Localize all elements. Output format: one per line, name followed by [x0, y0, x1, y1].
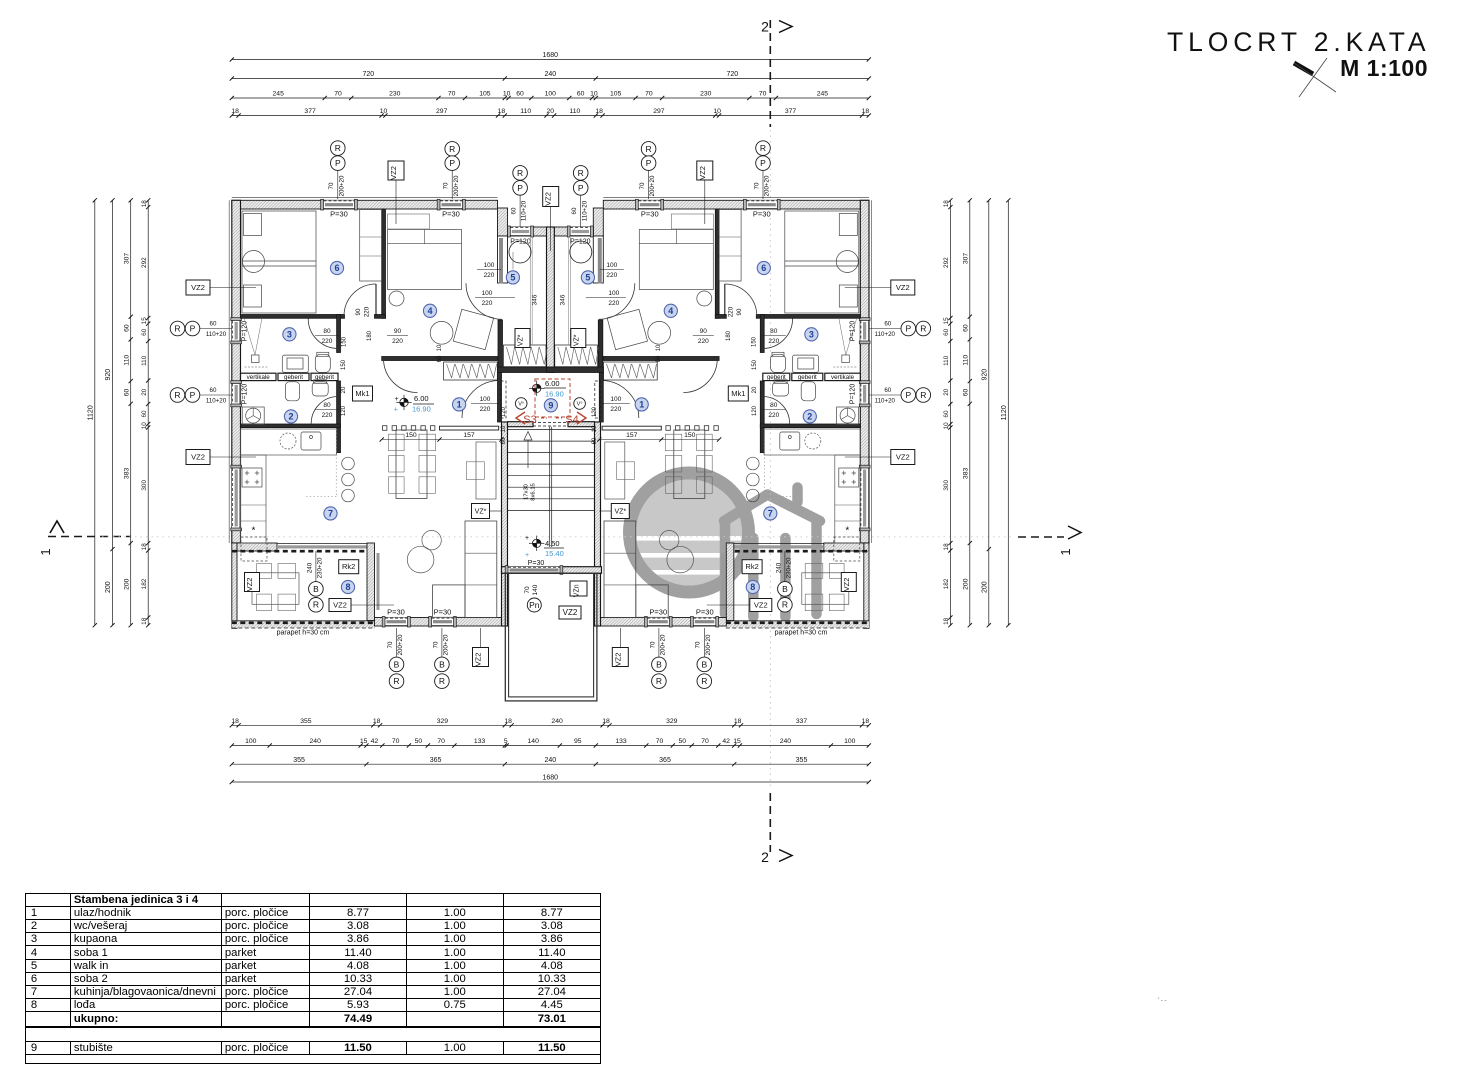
svg-text:60: 60: [501, 437, 507, 444]
svg-text:VZ2: VZ2: [842, 578, 851, 592]
svg-text:220: 220: [364, 306, 371, 317]
svg-text:2: 2: [761, 849, 769, 865]
svg-text:P: P: [335, 158, 341, 168]
svg-text:200: 200: [105, 581, 112, 593]
svg-text:180: 180: [367, 330, 373, 341]
svg-text:377: 377: [304, 108, 316, 115]
svg-text:120: 120: [752, 405, 758, 416]
svg-text:182: 182: [141, 578, 148, 589]
svg-text:300: 300: [943, 480, 950, 491]
svg-text:vertikale: vertikale: [247, 374, 271, 381]
svg-text:R: R: [920, 323, 926, 333]
svg-text:10: 10: [437, 344, 443, 351]
svg-text:80: 80: [770, 328, 778, 335]
svg-text:60: 60: [571, 207, 578, 214]
svg-text:8x6.15: 8x6.15: [531, 483, 537, 500]
svg-text:P=30: P=30: [442, 210, 460, 219]
svg-text:230: 230: [700, 91, 712, 98]
svg-text:42: 42: [371, 738, 379, 745]
svg-text:geberit: geberit: [284, 374, 303, 381]
svg-text:15: 15: [360, 738, 368, 745]
svg-text:3: 3: [809, 329, 814, 339]
svg-text:70: 70: [328, 182, 335, 189]
svg-text:8: 8: [750, 582, 755, 592]
svg-text:P: P: [760, 158, 766, 168]
svg-text:VZn: VZn: [574, 584, 581, 597]
svg-text:240: 240: [544, 71, 556, 78]
svg-text:B: B: [394, 659, 400, 669]
svg-text:P: P: [190, 390, 196, 400]
svg-text:20: 20: [341, 386, 347, 393]
svg-text:70: 70: [437, 738, 445, 745]
svg-text:70: 70: [334, 91, 342, 98]
svg-text:VZ2: VZ2: [245, 578, 254, 592]
svg-text:1: 1: [639, 399, 644, 409]
svg-text:20: 20: [752, 386, 758, 393]
svg-text:230: 230: [389, 91, 401, 98]
svg-text:1680: 1680: [543, 52, 559, 59]
svg-text:P: P: [578, 183, 584, 193]
svg-text:17x30: 17x30: [524, 484, 530, 500]
svg-text:+: +: [394, 407, 398, 414]
svg-text:60: 60: [884, 387, 891, 394]
svg-text:200: 200: [963, 578, 970, 590]
svg-text:200+20: 200+20: [338, 175, 345, 196]
svg-text:80: 80: [323, 402, 331, 409]
svg-text:1680: 1680: [543, 775, 559, 782]
svg-text:6.00: 6.00: [414, 394, 429, 403]
svg-text:100: 100: [608, 290, 619, 297]
svg-text:920: 920: [982, 369, 989, 381]
svg-text:100: 100: [482, 290, 493, 297]
svg-text:100: 100: [480, 396, 491, 403]
svg-text:110: 110: [963, 355, 970, 366]
svg-text:70: 70: [759, 91, 767, 98]
svg-text:383: 383: [123, 468, 130, 480]
svg-text:10: 10: [943, 422, 950, 430]
svg-text:P=30: P=30: [528, 560, 545, 567]
svg-text:VZ*: VZ*: [475, 508, 487, 515]
svg-text:M 1:100: M 1:100: [1340, 55, 1428, 81]
svg-text:6.00: 6.00: [545, 379, 560, 388]
svg-text:18: 18: [862, 718, 870, 725]
svg-text:TLOCRT 2.KATA: TLOCRT 2.KATA: [1167, 27, 1431, 57]
svg-text:vertikale: vertikale: [831, 374, 855, 381]
svg-text:B: B: [701, 659, 707, 669]
svg-text:60: 60: [210, 321, 217, 328]
svg-text:150: 150: [684, 432, 696, 439]
svg-text:70: 70: [639, 182, 646, 189]
svg-text:70: 70: [753, 182, 760, 189]
svg-text:1: 1: [457, 399, 462, 409]
svg-text:240: 240: [310, 738, 322, 745]
svg-text:6: 6: [761, 263, 766, 273]
svg-text:60: 60: [963, 324, 970, 332]
svg-text:70: 70: [387, 641, 394, 648]
svg-text:P=120: P=120: [849, 384, 856, 405]
svg-text:50: 50: [679, 738, 687, 745]
svg-text:4: 4: [668, 306, 673, 316]
svg-text:105: 105: [610, 91, 622, 98]
svg-text:292: 292: [943, 257, 950, 268]
svg-text:110: 110: [943, 355, 950, 366]
svg-text:110: 110: [569, 108, 580, 115]
svg-text:18: 18: [504, 718, 512, 725]
svg-text:100: 100: [844, 738, 856, 745]
svg-text:60: 60: [141, 328, 148, 336]
svg-text:60: 60: [943, 410, 950, 418]
svg-text:B: B: [782, 584, 788, 594]
svg-text:220: 220: [768, 338, 779, 345]
svg-text:230+20: 230+20: [317, 557, 324, 578]
svg-text:240: 240: [551, 718, 563, 725]
svg-text:Mk1: Mk1: [355, 389, 369, 398]
svg-text:P=30: P=30: [753, 210, 771, 219]
svg-text:9: 9: [548, 400, 553, 410]
svg-text:R: R: [578, 168, 584, 178]
svg-text:70: 70: [701, 738, 709, 745]
svg-text:P=120: P=120: [242, 321, 249, 342]
svg-text:60: 60: [511, 207, 518, 214]
svg-text:P=30: P=30: [641, 210, 659, 219]
svg-text:157: 157: [626, 432, 638, 439]
svg-text:95: 95: [574, 738, 582, 745]
svg-text:180: 180: [726, 330, 732, 341]
svg-text:60: 60: [123, 389, 130, 397]
svg-text:377: 377: [785, 108, 797, 115]
svg-text:R: R: [646, 144, 652, 154]
svg-text:90: 90: [394, 328, 402, 335]
svg-text:200+20: 200+20: [443, 634, 450, 655]
svg-text:60: 60: [884, 321, 891, 328]
svg-text:150: 150: [405, 432, 417, 439]
svg-text:P=30: P=30: [387, 608, 405, 617]
svg-text:S3: S3: [523, 414, 536, 426]
svg-text:R: R: [517, 168, 523, 178]
svg-text:R: R: [449, 144, 455, 154]
svg-text:1120: 1120: [1001, 405, 1008, 420]
svg-text:10: 10: [503, 91, 511, 98]
svg-text:10: 10: [713, 108, 721, 115]
svg-text:337: 337: [796, 718, 808, 725]
svg-text:+: +: [525, 552, 529, 559]
svg-text:720: 720: [362, 71, 374, 78]
svg-text:15: 15: [733, 738, 741, 745]
svg-text:200+20: 200+20: [660, 634, 667, 655]
svg-text:150: 150: [751, 336, 757, 347]
svg-text:329: 329: [437, 718, 449, 725]
svg-text:292: 292: [141, 257, 148, 268]
svg-text:200: 200: [123, 578, 130, 590]
svg-text:6: 6: [334, 263, 339, 273]
svg-text:R: R: [174, 323, 180, 333]
svg-text:245: 245: [273, 91, 285, 98]
svg-text:18: 18: [498, 108, 506, 115]
svg-text:P: P: [517, 183, 523, 193]
svg-text:120: 120: [592, 406, 598, 417]
svg-text:100: 100: [610, 396, 621, 403]
svg-text:VZ2: VZ2: [896, 283, 910, 292]
svg-text:70: 70: [656, 738, 664, 745]
svg-text:+: +: [525, 535, 529, 542]
svg-text:60: 60: [210, 387, 217, 394]
svg-text:60: 60: [141, 410, 148, 418]
svg-text:5: 5: [510, 272, 515, 282]
svg-text:18: 18: [141, 617, 148, 625]
svg-text:220: 220: [480, 406, 491, 413]
svg-text:10: 10: [590, 91, 598, 98]
svg-text:18: 18: [943, 543, 950, 551]
svg-text:' - -: ' - -: [1158, 998, 1166, 1004]
svg-text:100: 100: [245, 738, 257, 745]
svg-text:18: 18: [734, 718, 742, 725]
svg-text:80: 80: [770, 402, 778, 409]
svg-text:1: 1: [1058, 548, 1073, 555]
svg-text:S4: S4: [565, 414, 578, 426]
svg-text:100: 100: [484, 262, 495, 269]
svg-text:10: 10: [501, 425, 507, 432]
svg-text:920: 920: [105, 369, 112, 381]
svg-text:20: 20: [141, 388, 148, 396]
svg-text:18: 18: [862, 108, 870, 115]
svg-text:150: 150: [752, 359, 758, 370]
svg-text:133: 133: [615, 738, 627, 745]
svg-text:200+20: 200+20: [649, 175, 656, 196]
svg-text:355: 355: [293, 757, 305, 764]
svg-text:140: 140: [532, 584, 539, 595]
svg-text:Rk2: Rk2: [342, 562, 355, 571]
svg-text:15.40: 15.40: [545, 549, 564, 558]
svg-text:220: 220: [392, 338, 403, 345]
svg-text:15: 15: [141, 317, 148, 325]
svg-text:18: 18: [231, 108, 239, 115]
svg-text:245: 245: [817, 91, 829, 98]
svg-text:240: 240: [544, 757, 556, 764]
svg-text:10: 10: [592, 425, 598, 432]
svg-text:120: 120: [501, 406, 507, 417]
svg-text:365: 365: [659, 757, 671, 764]
svg-text:346: 346: [559, 294, 566, 305]
svg-text:5: 5: [585, 272, 590, 282]
svg-text:60: 60: [592, 437, 598, 444]
svg-text:VZ2: VZ2: [613, 653, 622, 667]
svg-text:220: 220: [322, 338, 333, 345]
svg-text:365: 365: [430, 757, 442, 764]
svg-text:VZ2: VZ2: [474, 653, 483, 667]
svg-text:200: 200: [982, 581, 989, 593]
svg-text:110+20: 110+20: [875, 331, 896, 338]
svg-text:R: R: [656, 676, 662, 686]
svg-text:307: 307: [123, 253, 130, 265]
svg-text:70: 70: [695, 641, 702, 648]
svg-text:60: 60: [656, 355, 662, 362]
svg-text:2: 2: [807, 411, 812, 421]
svg-text:B: B: [313, 584, 319, 594]
svg-text:R: R: [701, 676, 707, 686]
svg-text:80: 80: [323, 328, 331, 335]
svg-text:60: 60: [437, 355, 443, 362]
svg-text:90: 90: [700, 328, 708, 335]
svg-text:150: 150: [341, 359, 347, 370]
svg-text:VZ2: VZ2: [563, 608, 578, 617]
svg-text:60: 60: [123, 324, 130, 332]
svg-text:70: 70: [443, 182, 450, 189]
svg-text:VZ2: VZ2: [896, 453, 910, 462]
svg-text:parapet h=30 cm: parapet h=30 cm: [277, 630, 330, 637]
svg-text:10: 10: [656, 344, 662, 351]
svg-text:18: 18: [141, 543, 148, 551]
svg-text:P=30: P=30: [696, 608, 714, 617]
svg-text:parapet h=30 cm: parapet h=30 cm: [775, 630, 828, 637]
svg-text:1120: 1120: [88, 405, 95, 420]
svg-text:VZ*: VZ*: [573, 334, 580, 346]
svg-text:18: 18: [602, 718, 610, 725]
svg-text:220: 220: [727, 306, 734, 317]
svg-text:P: P: [905, 390, 911, 400]
svg-text:2: 2: [761, 19, 769, 35]
svg-text:18: 18: [943, 200, 950, 208]
svg-text:110+20: 110+20: [581, 200, 588, 221]
svg-text:60: 60: [963, 389, 970, 397]
svg-text:220: 220: [606, 272, 617, 279]
svg-text:16.90: 16.90: [545, 390, 564, 399]
svg-text:VZ2: VZ2: [698, 166, 707, 180]
svg-text:R: R: [335, 143, 341, 153]
svg-text:R: R: [920, 390, 926, 400]
svg-text:240: 240: [775, 562, 782, 573]
svg-text:15: 15: [943, 317, 950, 325]
svg-text:70: 70: [524, 586, 531, 594]
svg-text:60: 60: [577, 91, 585, 98]
svg-text:70: 70: [645, 91, 653, 98]
svg-text:200+20: 200+20: [764, 175, 771, 196]
svg-text:220: 220: [608, 300, 619, 307]
svg-text:230+20: 230+20: [786, 557, 793, 578]
svg-text:60: 60: [943, 328, 950, 336]
svg-text:220: 220: [610, 406, 621, 413]
svg-text:355: 355: [300, 718, 312, 725]
svg-text:P=120: P=120: [242, 384, 249, 405]
svg-text:220: 220: [482, 300, 493, 307]
svg-text:18: 18: [943, 617, 950, 625]
svg-text:110+20: 110+20: [206, 331, 227, 338]
svg-text:18: 18: [141, 200, 148, 208]
svg-text:200+20: 200+20: [705, 634, 712, 655]
svg-text:2: 2: [288, 411, 293, 421]
svg-text:220: 220: [698, 338, 709, 345]
svg-text:307: 307: [963, 253, 970, 265]
svg-text:297: 297: [436, 108, 448, 115]
svg-text:B: B: [656, 659, 662, 669]
svg-text:Mk1: Mk1: [731, 389, 745, 398]
svg-text:P: P: [646, 158, 652, 168]
svg-text:R: R: [782, 600, 788, 610]
svg-text:50: 50: [415, 738, 423, 745]
svg-text:*: *: [252, 526, 256, 537]
svg-text:5: 5: [504, 738, 508, 745]
svg-text:P: P: [905, 323, 911, 333]
svg-text:110: 110: [123, 355, 130, 366]
svg-text:Pn: Pn: [529, 600, 540, 610]
svg-text:geberit: geberit: [798, 374, 817, 381]
svg-text:VZ2: VZ2: [333, 601, 347, 610]
svg-text:182: 182: [943, 578, 950, 589]
svg-text:4: 4: [427, 306, 432, 316]
svg-text:VZ2: VZ2: [191, 283, 205, 292]
svg-text:VZ*: VZ*: [614, 508, 626, 515]
svg-text:+: +: [394, 396, 398, 403]
svg-text:P: P: [449, 158, 455, 168]
svg-text:150: 150: [342, 336, 348, 347]
svg-text:R: R: [174, 390, 180, 400]
svg-text:16.90: 16.90: [412, 405, 431, 414]
svg-text:329: 329: [666, 718, 678, 725]
svg-text:10: 10: [380, 108, 388, 115]
svg-text:18: 18: [373, 718, 381, 725]
svg-text:100: 100: [545, 91, 557, 98]
svg-text:110: 110: [520, 108, 531, 115]
svg-text:P=30: P=30: [330, 210, 348, 219]
svg-text:P: P: [190, 323, 196, 333]
svg-text:18: 18: [231, 718, 239, 725]
svg-text:133: 133: [474, 738, 486, 745]
svg-text:200+20: 200+20: [397, 634, 404, 655]
svg-text:VZ2: VZ2: [191, 453, 205, 462]
svg-text:200+20: 200+20: [453, 175, 460, 196]
svg-text:42: 42: [722, 738, 730, 745]
svg-text:VZ2: VZ2: [544, 192, 553, 206]
svg-text:R: R: [393, 676, 399, 686]
svg-text:120: 120: [341, 405, 347, 416]
svg-text:60: 60: [516, 91, 524, 98]
svg-text:18: 18: [595, 108, 603, 115]
svg-text:4.50: 4.50: [545, 539, 560, 548]
svg-text:VZ2: VZ2: [754, 601, 768, 610]
svg-text:220: 220: [484, 272, 495, 279]
svg-text:3: 3: [287, 329, 292, 339]
svg-text:P=30: P=30: [434, 608, 452, 617]
svg-text:P=30: P=30: [649, 608, 667, 617]
svg-text:70: 70: [392, 738, 400, 745]
svg-text:355: 355: [796, 757, 808, 764]
svg-text:346: 346: [532, 294, 539, 305]
svg-text:1: 1: [38, 548, 53, 555]
svg-text:B: B: [439, 659, 445, 669]
svg-text:V°: V°: [518, 401, 524, 407]
svg-text:720: 720: [726, 71, 738, 78]
svg-text:240: 240: [780, 738, 792, 745]
svg-text:140: 140: [528, 738, 540, 745]
svg-text:20: 20: [547, 108, 555, 115]
svg-text:70: 70: [432, 641, 439, 648]
svg-text:Rk2: Rk2: [745, 562, 758, 571]
svg-text:7: 7: [768, 508, 773, 518]
svg-text:110+20: 110+20: [206, 398, 227, 405]
svg-text:20: 20: [943, 388, 950, 396]
svg-text:VZ*: VZ*: [518, 334, 525, 346]
svg-text:8: 8: [345, 582, 350, 592]
svg-text:157: 157: [463, 432, 475, 439]
svg-text:10: 10: [141, 422, 148, 430]
svg-text:V°: V°: [577, 401, 583, 407]
svg-text:110+20: 110+20: [875, 398, 896, 405]
svg-text:R: R: [439, 676, 445, 686]
svg-text:220: 220: [768, 412, 779, 419]
svg-text:70: 70: [649, 641, 656, 648]
svg-text:70: 70: [448, 91, 456, 98]
svg-text:110+20: 110+20: [521, 200, 528, 221]
svg-text:105: 105: [479, 91, 491, 98]
